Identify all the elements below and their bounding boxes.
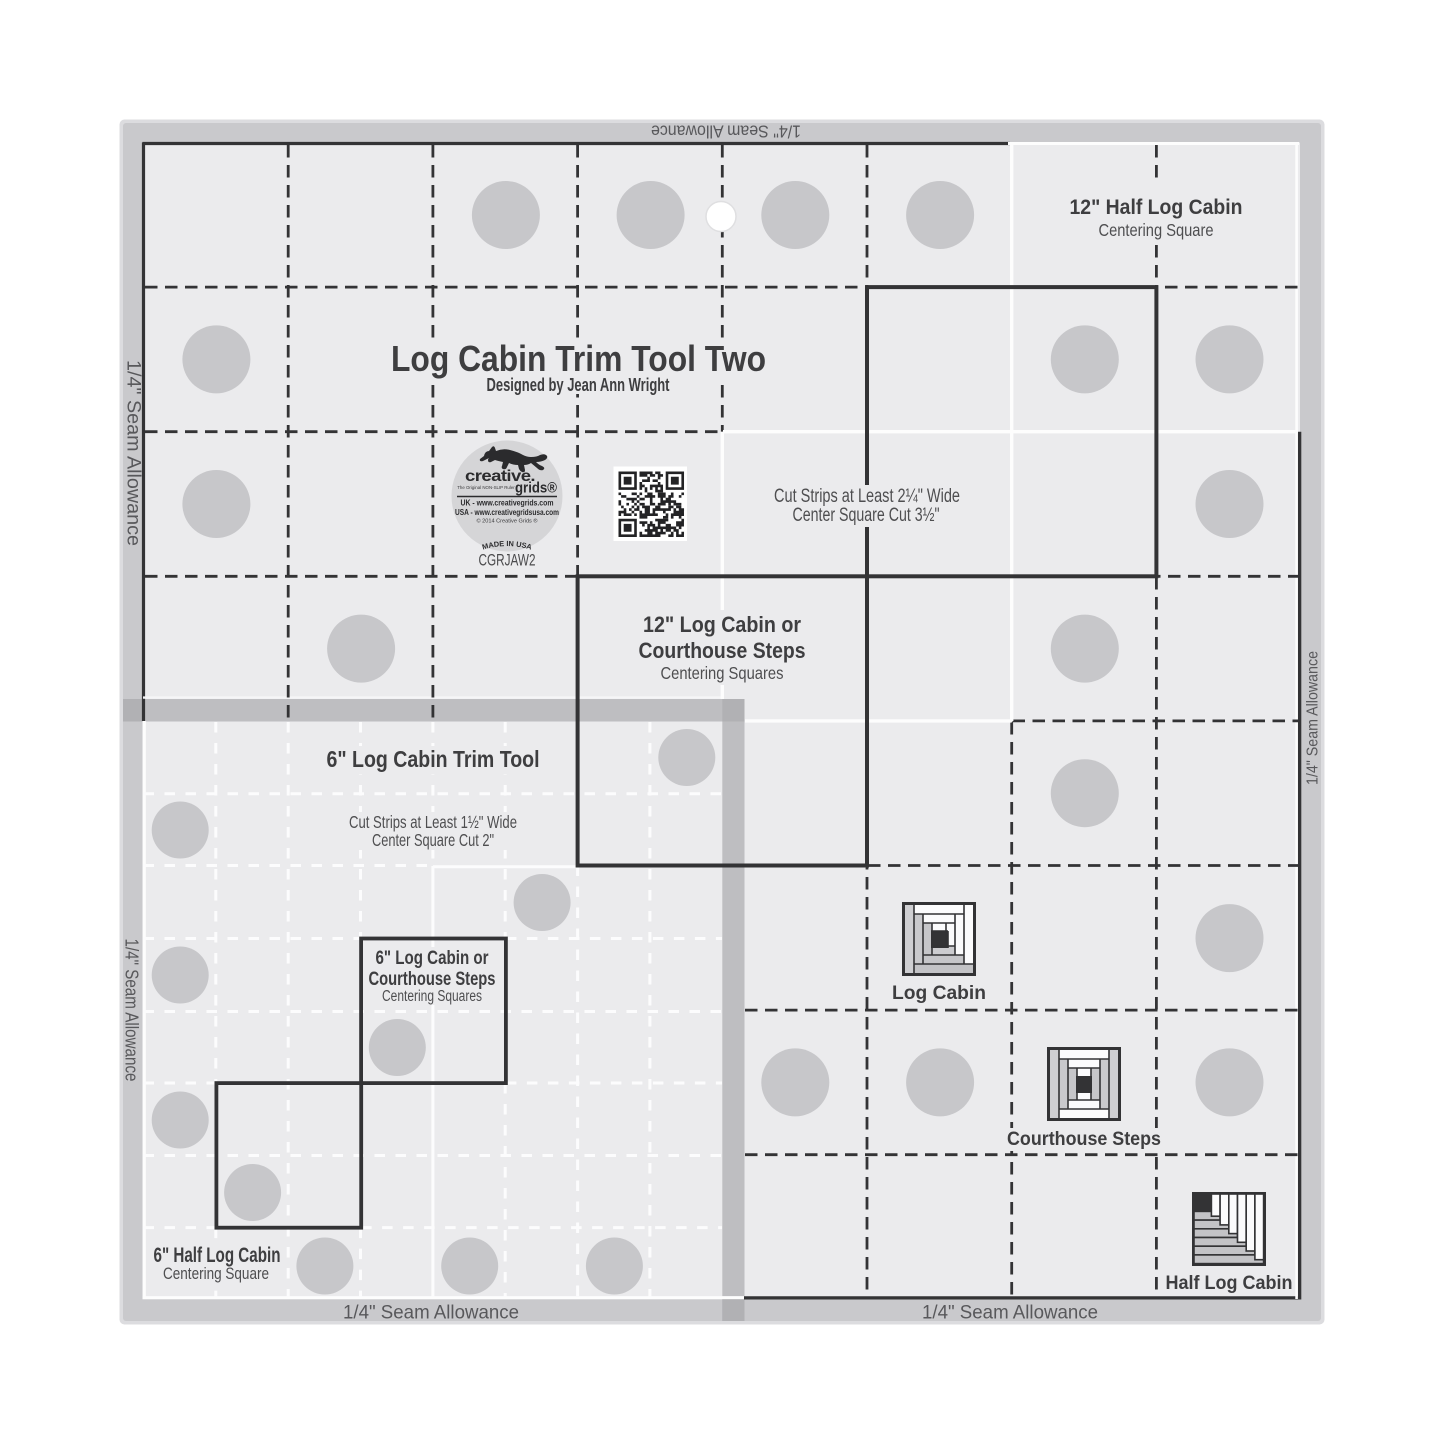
svg-text:1/4" Seam Allowance: 1/4" Seam Allowance	[122, 939, 142, 1082]
svg-text:Log Cabin: Log Cabin	[892, 982, 986, 1004]
svg-text:1/4" Seam Allowance: 1/4" Seam Allowance	[651, 122, 801, 142]
svg-text:12" Log Cabin or: 12" Log Cabin or	[643, 612, 801, 637]
svg-text:6" Log Cabin or: 6" Log Cabin or	[376, 947, 489, 969]
svg-text:6" Log Cabin Trim Tool: 6" Log Cabin Trim Tool	[327, 746, 540, 772]
svg-text:6" Half Log Cabin: 6" Half Log Cabin	[154, 1244, 281, 1267]
svg-text:UK - www.creativegrids.com: UK - www.creativegrids.com	[461, 498, 554, 508]
svg-text:1/4" Seam Allowance: 1/4" Seam Allowance	[343, 1302, 519, 1324]
svg-text:Center Square Cut 2": Center Square Cut 2"	[372, 830, 494, 850]
svg-text:Log Cabin Trim Tool Two: Log Cabin Trim Tool Two	[391, 338, 766, 379]
svg-text:1/4" Seam Allowance: 1/4" Seam Allowance	[123, 360, 145, 546]
svg-text:Centering Squares: Centering Squares	[382, 988, 482, 1005]
svg-text:Centering Square: Centering Square	[163, 1265, 269, 1283]
svg-text:Centering Square: Centering Square	[1099, 220, 1214, 240]
svg-text:1/4" Seam Allowance: 1/4" Seam Allowance	[922, 1302, 1098, 1324]
svg-text:CGRJAW2: CGRJAW2	[479, 552, 536, 570]
svg-text:1/4" Seam Allowance: 1/4" Seam Allowance	[1305, 651, 1322, 785]
svg-text:Cut Strips at Least 1½" Wide: Cut Strips at Least 1½" Wide	[349, 812, 517, 832]
svg-text:© 2014 Creative Grids ®: © 2014 Creative Grids ®	[476, 518, 538, 525]
svg-text:Courthouse Steps: Courthouse Steps	[1007, 1128, 1161, 1150]
svg-text:12" Half Log Cabin: 12" Half Log Cabin	[1070, 195, 1243, 219]
svg-text:grids®: grids®	[515, 480, 557, 497]
svg-text:Courthouse Steps: Courthouse Steps	[369, 968, 496, 990]
svg-text:USA - www.creativegridsusa.com: USA - www.creativegridsusa.com	[455, 507, 559, 517]
svg-text:Half Log Cabin: Half Log Cabin	[1166, 1272, 1293, 1294]
svg-text:Centering Squares: Centering Squares	[661, 663, 784, 683]
svg-text:Center Square Cut 3½": Center Square Cut 3½"	[793, 505, 940, 526]
svg-text:Courthouse Steps: Courthouse Steps	[639, 638, 806, 663]
svg-text:Designed by Jean Ann Wright: Designed by Jean Ann Wright	[487, 374, 670, 395]
svg-text:Cut Strips at Least 2¼" Wide: Cut Strips at Least 2¼" Wide	[774, 486, 960, 507]
svg-text:The Original NON-SLIP Ruler: The Original NON-SLIP Ruler	[457, 485, 515, 490]
